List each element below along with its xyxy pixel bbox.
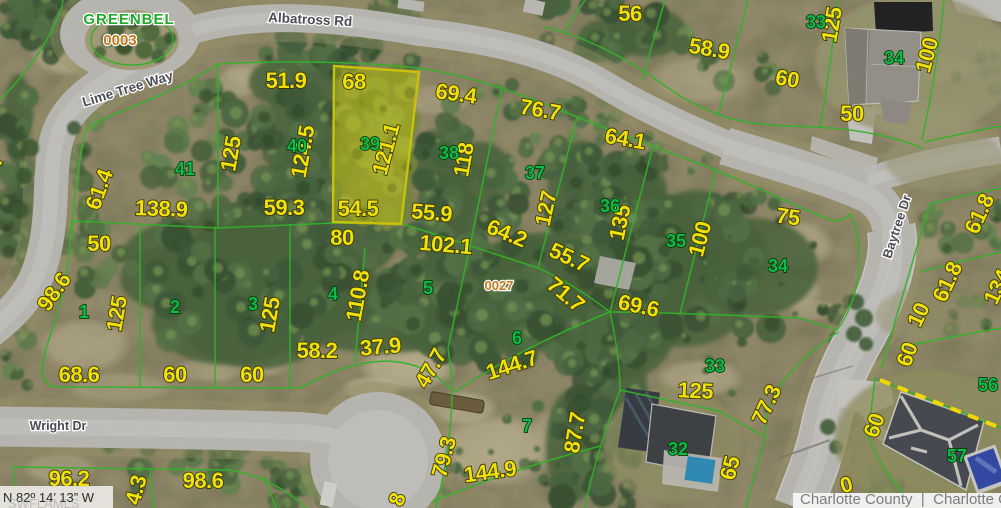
svg-text:4: 4: [328, 284, 338, 304]
svg-text:41: 41: [175, 159, 195, 179]
svg-text:60: 60: [163, 362, 187, 387]
svg-text:33: 33: [705, 356, 725, 376]
svg-text:60: 60: [774, 64, 802, 93]
svg-text:0027: 0027: [485, 278, 514, 293]
svg-text:3: 3: [248, 294, 258, 314]
svg-text:1: 1: [79, 302, 89, 322]
svg-text:68: 68: [342, 69, 366, 94]
svg-text:59.3: 59.3: [264, 195, 305, 220]
svg-text:98.6: 98.6: [183, 468, 224, 493]
svg-text:68.6: 68.6: [59, 362, 100, 387]
svg-text:GREENBEL: GREENBEL: [83, 11, 174, 28]
svg-text:SWFLAMLS: SWFLAMLS: [8, 496, 80, 508]
svg-text:58.2: 58.2: [297, 338, 338, 363]
svg-text:7: 7: [522, 416, 532, 436]
svg-text:56: 56: [618, 1, 642, 26]
svg-text:50: 50: [87, 231, 111, 256]
svg-text:37.9: 37.9: [359, 332, 402, 360]
svg-text:60: 60: [240, 362, 264, 387]
svg-text:Wright Dr: Wright Dr: [30, 419, 87, 433]
svg-text:Charlotte County | Charlotte: Charlotte County | Charlotte C: [800, 491, 1001, 508]
svg-text:56: 56: [978, 375, 998, 395]
svg-text:50: 50: [840, 101, 864, 126]
svg-text:34: 34: [768, 256, 788, 276]
svg-text:5: 5: [423, 278, 433, 298]
svg-text:35: 35: [666, 231, 686, 251]
svg-text:0003: 0003: [103, 32, 136, 49]
svg-text:51.9: 51.9: [266, 68, 307, 93]
svg-text:34: 34: [884, 48, 904, 68]
svg-text:102.1: 102.1: [418, 230, 473, 260]
svg-text:57: 57: [947, 446, 967, 466]
svg-text:138.9: 138.9: [135, 195, 189, 222]
svg-text:2: 2: [170, 297, 180, 317]
svg-text:39: 39: [360, 134, 380, 154]
svg-text:40: 40: [287, 136, 307, 156]
svg-text:33: 33: [806, 12, 826, 32]
svg-text:37: 37: [525, 163, 545, 183]
svg-text:36: 36: [600, 196, 620, 216]
svg-text:75: 75: [775, 203, 802, 231]
svg-text:32: 32: [668, 439, 688, 459]
svg-text:80: 80: [330, 225, 354, 250]
svg-text:38: 38: [439, 143, 459, 163]
svg-text:125: 125: [677, 377, 714, 404]
svg-text:55.9: 55.9: [410, 198, 453, 226]
svg-text:6: 6: [512, 328, 522, 348]
svg-text:54.5: 54.5: [338, 196, 379, 221]
